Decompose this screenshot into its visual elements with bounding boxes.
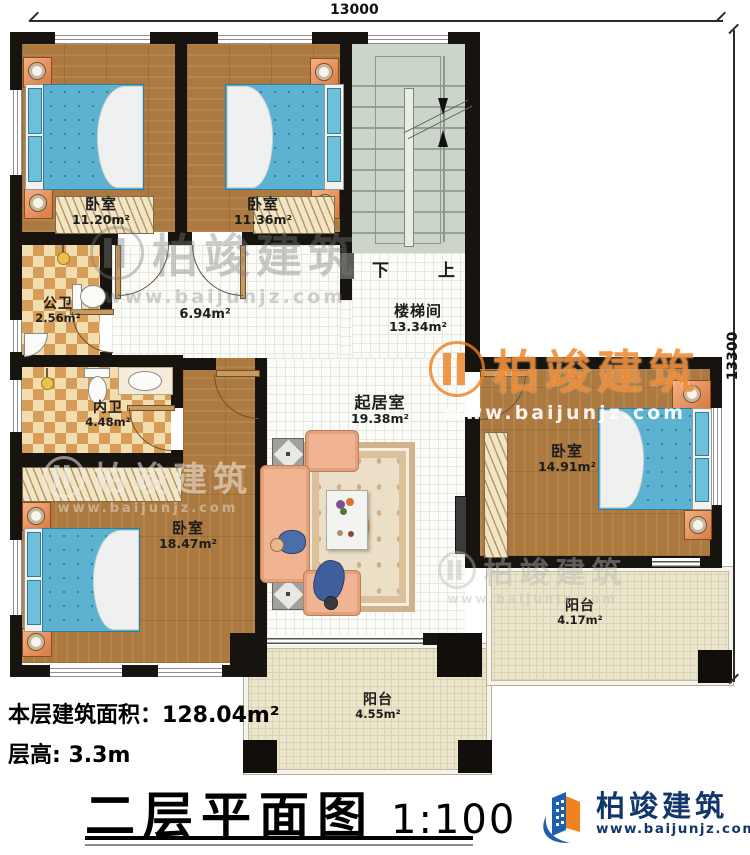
brand-block: 柏竣建筑 www.baijunjz.com — [596, 792, 750, 837]
room-name: 公卫 — [24, 296, 92, 312]
room-name: 阳台 — [333, 692, 423, 708]
table-item — [348, 531, 354, 537]
bed-pillow — [695, 412, 709, 456]
room-area: 18.47m² — [143, 537, 233, 551]
bed-pillow — [28, 88, 42, 134]
wall-bedroom-divider — [175, 44, 187, 232]
wall-bedrooms-bottom-b — [168, 232, 192, 245]
wall-stub — [340, 253, 354, 279]
floor-height-label: 层高: — [8, 743, 61, 768]
bed-blanket — [93, 530, 139, 630]
wall-bath-divider — [10, 355, 183, 367]
brand-logo-svg — [536, 786, 592, 848]
floor-area-value: 128.04m² — [162, 703, 279, 728]
floor-area-line: 本层建筑面积：128.04m² — [8, 697, 279, 729]
window-bedroom-tl-top — [55, 32, 150, 44]
window-stairwell-top — [368, 32, 448, 44]
room-name: 卧室 — [143, 520, 233, 537]
stair-arrow-down-icon — [438, 98, 448, 115]
brand-name: 柏竣建筑 — [596, 792, 750, 821]
room-area: 4.17m² — [535, 614, 625, 627]
column — [458, 740, 492, 773]
window-bedroom-bl-bottom-b — [158, 665, 222, 677]
sliding-door-balcony-bottom — [267, 635, 423, 645]
room-label-bedroom-tl: 卧室 11.20m² — [56, 196, 146, 228]
window-bedroom-bl-bottom-a — [50, 665, 122, 677]
room-label-private-bath: 内卫 4.48m² — [66, 400, 150, 429]
room-area: 13.34m² — [372, 320, 464, 334]
bed-pillow — [28, 136, 42, 182]
room-name: 卧室 — [522, 443, 612, 460]
dimension-right-label: 13300 — [725, 316, 741, 396]
room-label-bedroom-tm: 卧室 11.36m² — [218, 196, 308, 228]
room-label-hallway: 6.94m² — [160, 308, 250, 323]
sink-icon — [128, 371, 162, 391]
room-area: 4.48m² — [66, 416, 150, 429]
room-name: 卧室 — [218, 196, 308, 213]
room-label-public-bath: 公卫 2.56m² — [24, 296, 92, 325]
stair-down-label: 下 — [372, 256, 389, 281]
lamp-icon — [27, 507, 45, 525]
wall-stair-right — [465, 32, 480, 372]
wardrobe — [484, 432, 508, 558]
room-area: 11.36m² — [218, 213, 308, 227]
wall-bedroom-right-left — [465, 417, 480, 568]
bed-pillow — [327, 88, 341, 134]
dimension-top-label: 13000 — [330, 2, 379, 18]
room-label-living: 起居室 19.38m² — [330, 394, 430, 427]
lamp-icon — [28, 62, 46, 80]
stair-arrow-up-icon — [438, 130, 448, 147]
lamp-icon — [315, 63, 333, 81]
floor-plan: 下 上 — [0, 0, 750, 855]
room-name: 楼梯间 — [372, 303, 464, 320]
sofa — [260, 465, 310, 583]
window-bedroom-tm-top — [218, 32, 312, 44]
brand-url: www.baijunjz.com — [596, 821, 750, 837]
column-balcony-mid — [437, 633, 482, 677]
wall-vestibule-top-a — [183, 358, 216, 370]
window-public-bath-left — [10, 320, 22, 352]
bed-pillow — [27, 532, 41, 577]
lamp-icon — [689, 516, 707, 534]
room-area: 14.91m² — [522, 460, 612, 474]
bed-pillow — [327, 136, 341, 182]
person-head — [324, 596, 338, 610]
room-area: 4.55m² — [333, 708, 423, 721]
room-label-balcony-right: 阳台 4.17m² — [535, 598, 625, 627]
wall-corner-pillar — [230, 633, 267, 677]
bed-pillow — [27, 580, 41, 625]
armchair — [305, 430, 359, 472]
hallway-floor-2 — [340, 300, 352, 358]
lamp-icon — [27, 633, 45, 651]
flower-icon — [346, 498, 354, 506]
wall-right-block-top — [465, 357, 722, 369]
sliding-door-balcony-right — [652, 558, 700, 567]
bed-blanket — [97, 86, 143, 188]
room-label-bedroom-bl: 卧室 18.47m² — [143, 520, 233, 552]
lamp-icon — [29, 194, 47, 212]
wall-private-bath-bottom — [10, 453, 183, 467]
room-area: 19.38m² — [330, 412, 430, 426]
brand-logo-icon — [536, 786, 592, 848]
room-area: 6.94m² — [160, 308, 250, 323]
stair-guide-line — [443, 56, 445, 242]
room-label-stairwell: 楼梯间 13.34m² — [372, 303, 464, 335]
bed-pillow — [695, 458, 709, 502]
title-underline — [85, 836, 473, 840]
room-name: 卧室 — [56, 196, 146, 213]
wall-bottom-main — [10, 665, 267, 677]
room-label-balcony-bottom: 阳台 4.55m² — [333, 692, 423, 721]
ceiling-lamp-icon — [41, 377, 54, 390]
floor-height-line: 层高: 3.3m — [8, 737, 130, 769]
table-item — [337, 530, 343, 536]
wardrobe — [22, 467, 182, 502]
column — [698, 650, 732, 683]
room-name: 起居室 — [330, 394, 430, 412]
room-area: 11.20m² — [56, 213, 146, 227]
dimension-line-top — [30, 20, 723, 22]
lamp-icon — [683, 385, 701, 403]
room-name: 阳台 — [535, 598, 625, 614]
column — [243, 740, 277, 773]
window-bedroom-bl-left — [10, 540, 22, 615]
room-area: 2.56m² — [24, 312, 92, 325]
floor-height-value: 3.3m — [68, 743, 130, 768]
room-label-bedroom-right: 卧室 14.91m² — [522, 443, 612, 475]
room-name: 内卫 — [66, 400, 150, 416]
floor-area-label: 本层建筑面积： — [8, 703, 162, 728]
title-underline-thin — [85, 844, 473, 846]
window-private-bath-left — [10, 380, 22, 432]
window-bedroom-tl-left — [10, 90, 22, 175]
stair-up-label: 上 — [438, 256, 455, 281]
stair-center-rail — [404, 88, 414, 247]
person-head — [270, 538, 284, 552]
tv-icon — [455, 496, 467, 554]
flower-icon — [340, 508, 347, 515]
ceiling-lamp-icon — [57, 252, 70, 265]
